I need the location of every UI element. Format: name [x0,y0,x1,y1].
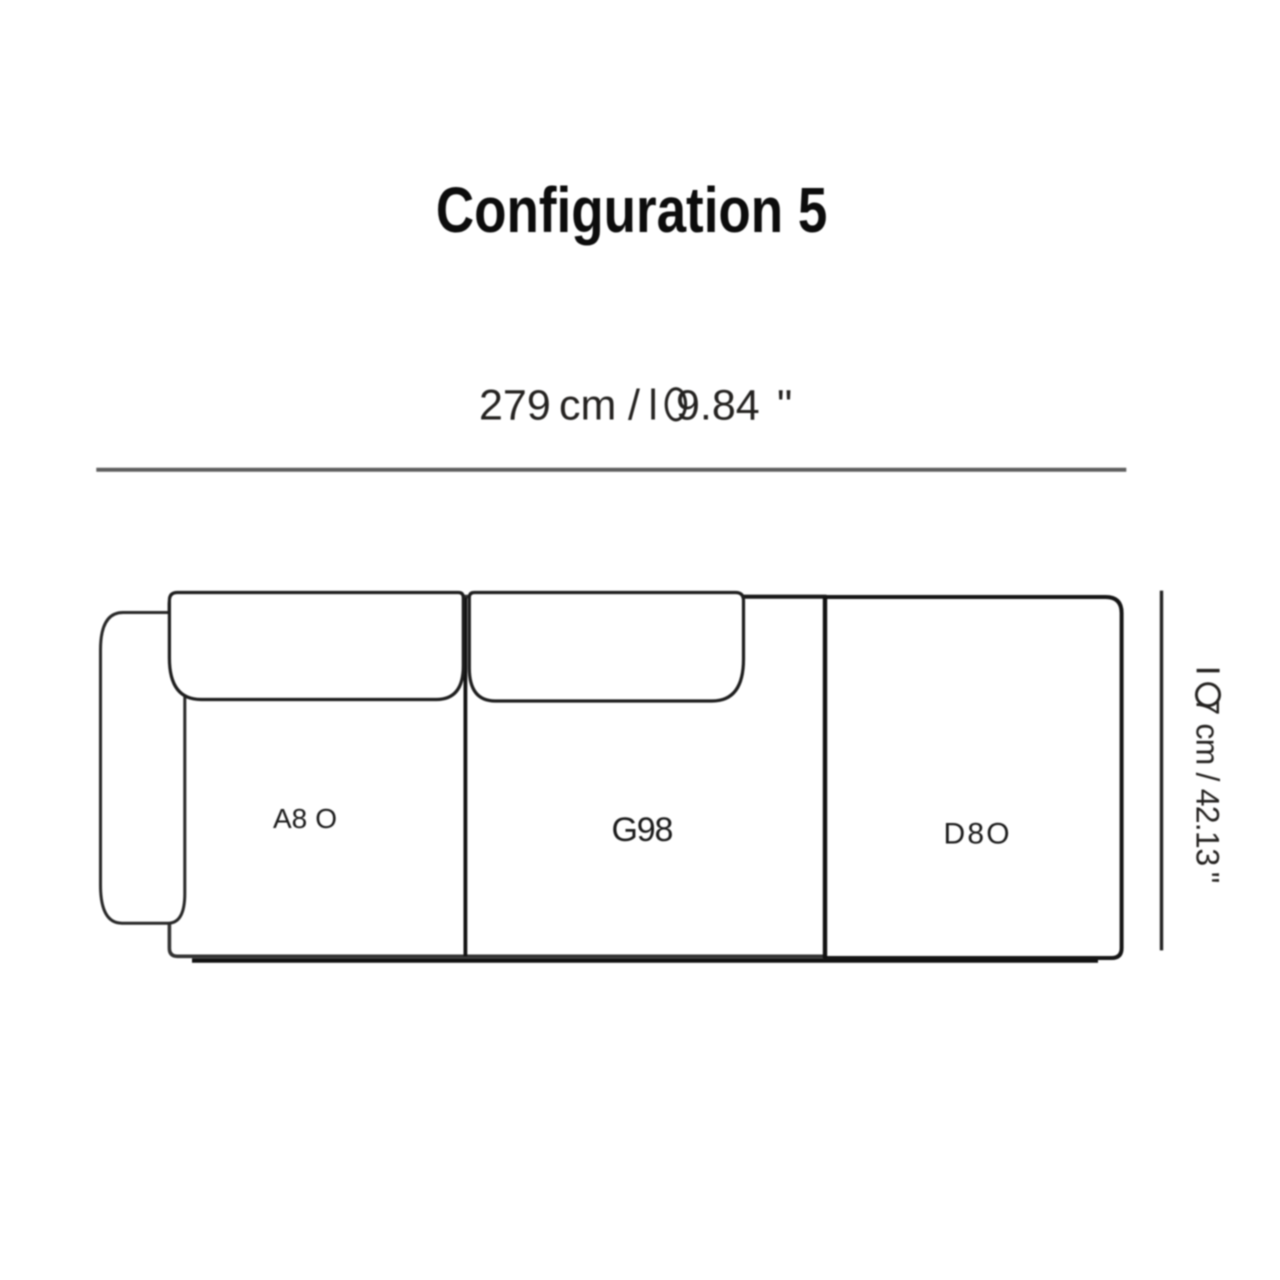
svg-text:279: 279 [479,382,551,430]
svg-text:cm: cm [559,382,616,430]
svg-text:cm / 42.1: cm / 42.1 [1190,723,1226,847]
svg-text:9.84: 9.84 [676,382,760,430]
svg-text:/: / [628,382,640,430]
svg-text:": " [777,382,792,430]
svg-text:3: 3 [1190,848,1226,866]
svg-text:": " [1190,872,1226,883]
svg-text:G98: G98 [612,811,673,849]
svg-text:D8O: D8O [944,818,1012,851]
svg-text:Configuration 5: Configuration 5 [436,175,827,246]
svg-text:A8O: A8O [273,803,337,834]
svg-text:7: 7 [1190,697,1226,715]
